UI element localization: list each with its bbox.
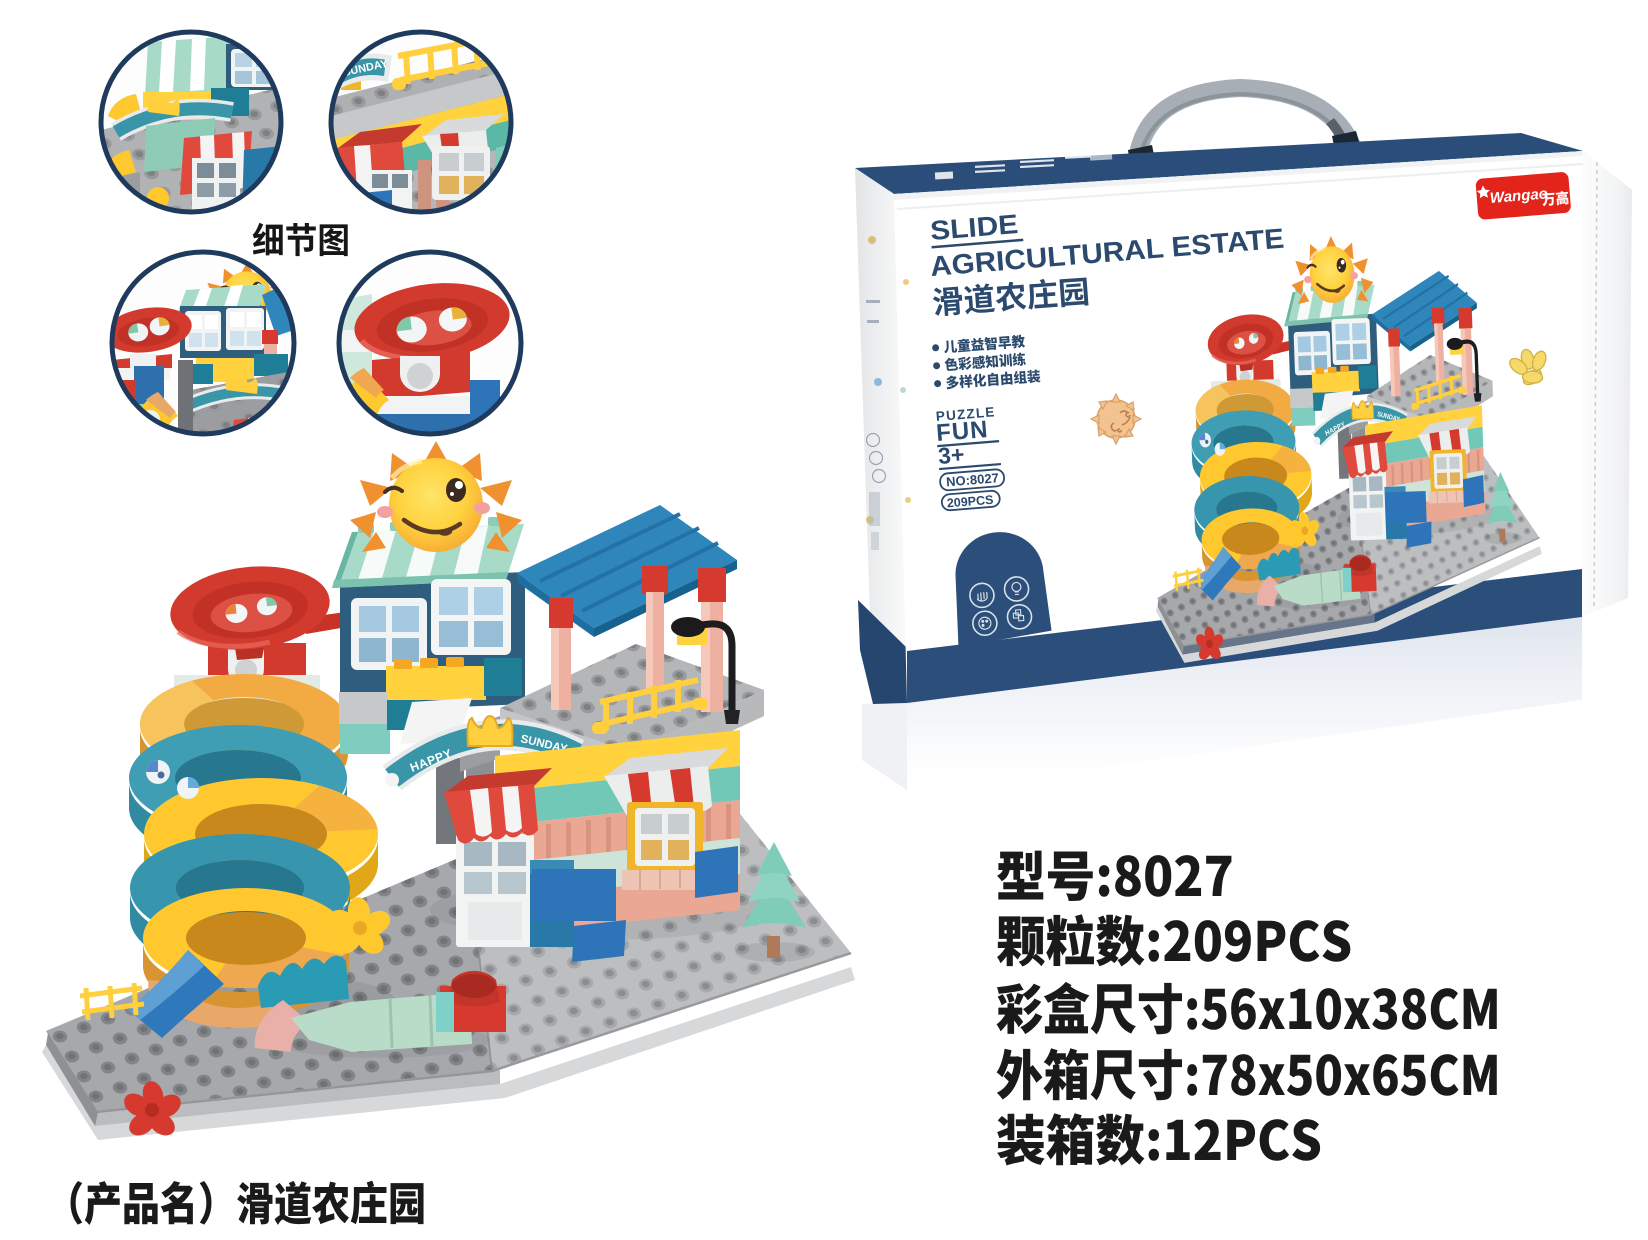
svg-text:3+: 3+ [937, 441, 965, 469]
